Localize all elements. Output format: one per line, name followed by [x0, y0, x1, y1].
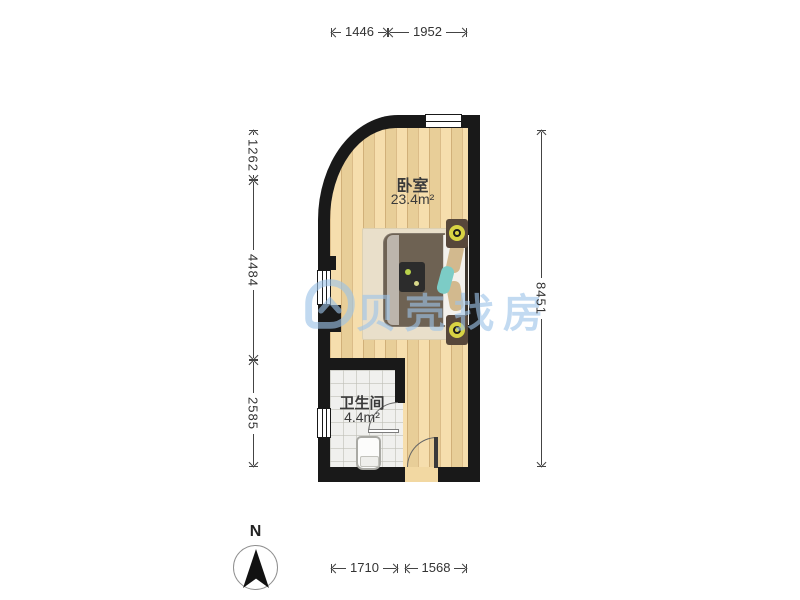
bedside-lamp-icon	[449, 225, 465, 241]
north-label: N	[233, 523, 278, 541]
dimension-value: 1446	[341, 25, 378, 39]
dimension-value: 1568	[418, 561, 455, 575]
dimension-value: 1952	[409, 25, 446, 39]
floor-plan-page: 卧室 23.4m² 卫生间 4.4m² 贝壳找房 N 1446 1952 171…	[0, 0, 800, 600]
watermark-shell-logo-icon	[303, 277, 357, 331]
entry-door-threshold	[405, 467, 438, 482]
dimension-right: 8451	[534, 130, 548, 467]
bathroom-door-leaf	[368, 429, 399, 433]
dimension-left-middle: 4484	[246, 180, 260, 360]
dimension-value: 8451	[534, 278, 549, 319]
dimension-bottom-left: 1710	[331, 561, 398, 575]
dimension-left-upper: 1262	[246, 130, 260, 180]
tray-dot	[405, 269, 411, 275]
entry-door-leaf	[434, 437, 438, 468]
dimension-value: 4484	[246, 250, 261, 291]
dimension-bottom-right: 1568	[405, 561, 467, 575]
bathroom-area-label: 4.4m²	[322, 409, 402, 425]
bedroom-area-label: 23.4m²	[370, 191, 455, 207]
dimension-value: 1710	[346, 561, 383, 575]
bathroom-top-wall	[318, 358, 405, 370]
watermark-text: 贝壳找房	[356, 281, 552, 339]
dimension-top-right: 1952	[388, 25, 467, 39]
left-wall-pillar-upper	[318, 256, 336, 270]
toilet-seat	[360, 456, 379, 467]
dimension-value: 2585	[246, 393, 261, 434]
dimension-left-lower: 2585	[246, 360, 260, 467]
top-window-icon	[425, 114, 462, 128]
dimension-top-left: 1446	[331, 25, 388, 39]
